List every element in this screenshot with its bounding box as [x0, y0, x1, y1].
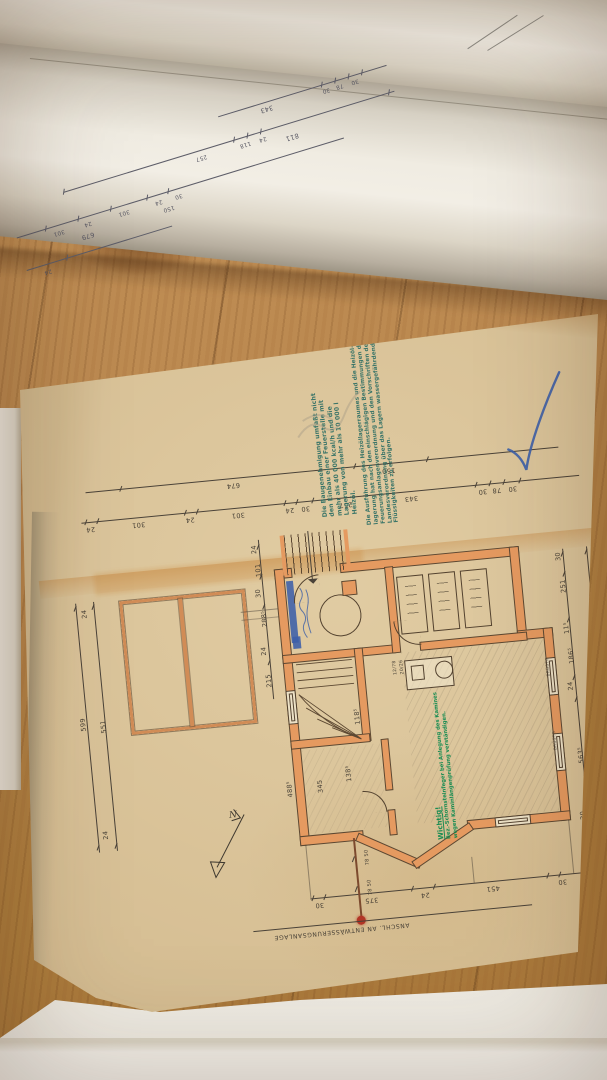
- dim-label: 30: [580, 810, 587, 820]
- white-sheet-bottom-second: [0, 1038, 607, 1080]
- dim-line: [586, 546, 607, 851]
- wall: [388, 810, 396, 834]
- dim-label: 118: [239, 139, 252, 148]
- pencil-scribble: [283, 371, 375, 459]
- dim-label: 24: [567, 681, 574, 691]
- dim-label: 30: [174, 191, 183, 199]
- dim-label: 30: [321, 86, 330, 94]
- dim-label: 138⁵: [345, 765, 353, 782]
- dim-label: 24: [260, 646, 267, 656]
- dim-label: 78: [335, 82, 344, 90]
- drain-pipe-line: [353, 838, 363, 922]
- dim-label: 345: [317, 779, 325, 793]
- blueprint-sheet: 674 150 24 301 24 301 24 30 257 343 30 7…: [0, 300, 607, 1020]
- dim-label: 30: [558, 878, 568, 885]
- white-sheet-under-left: [0, 408, 21, 790]
- dim-label: 24: [420, 891, 430, 898]
- dim-label: 30: [508, 485, 518, 492]
- dim-label: 150: [162, 203, 175, 212]
- drain-label: ANSCHL. AN ENTWÄSSERUNGSANLAGE: [274, 921, 410, 940]
- dim-label: 24: [251, 545, 258, 555]
- extension-line: [471, 857, 474, 883]
- dim-label: 24: [258, 134, 267, 142]
- drain-dim: 78 50: [367, 879, 373, 895]
- photo-of-blueprints: 343 30 78 30 257 118 24 811 301 24 301 2…: [0, 0, 607, 1080]
- appliance-note: 12/78: [393, 660, 399, 675]
- dim-label: 30: [555, 552, 562, 562]
- pencil-hatch-room: [302, 743, 388, 834]
- dim-label: 551: [100, 720, 108, 734]
- blue-pen-checkmark: [473, 361, 579, 485]
- dim-label: 301: [132, 521, 146, 529]
- dim-label: 811: [285, 132, 300, 142]
- tank-label-lines: [437, 582, 451, 617]
- dim-label: 24: [154, 198, 163, 206]
- dim-label: 251: [560, 579, 568, 593]
- window-symbol: [496, 815, 531, 826]
- extension-line: [305, 845, 311, 899]
- north-arrow-icon: N: [195, 804, 258, 883]
- boiler-circle: [318, 592, 364, 638]
- dim-label: 11⁵: [563, 622, 571, 635]
- dim-label: 78: [492, 486, 502, 493]
- terrace-divider: [178, 598, 194, 726]
- dim-label: 101: [255, 563, 263, 577]
- winder-stair: [287, 651, 367, 749]
- dim-label: 488⁵: [286, 781, 294, 798]
- dim-label: 11⁵: [584, 841, 592, 854]
- dim-label: 301: [117, 208, 130, 217]
- extension-line: [568, 819, 574, 873]
- oil-tank: [460, 568, 492, 628]
- sheet-content: 674 150 24 301 24 301 24 30 257 343 30 7…: [20, 328, 607, 998]
- dim-label: 24: [285, 506, 295, 513]
- tank-label-lines: [405, 585, 419, 620]
- dim-label: 288⁵: [261, 610, 269, 627]
- dim-label: 30: [255, 589, 262, 599]
- dim-label: 186⁵: [568, 647, 576, 664]
- dim-label: 30: [350, 77, 359, 85]
- dim-label: 375: [365, 896, 379, 904]
- north-label: N: [228, 810, 239, 821]
- dim-label: 24: [102, 830, 109, 840]
- dim-label: 118⁵: [353, 708, 361, 725]
- dim-label-total: 1100: [596, 684, 604, 703]
- dim-label: 24: [43, 267, 52, 275]
- dim-label: 679: [81, 231, 95, 241]
- door-arc: [292, 574, 321, 603]
- dim-label: 301: [231, 511, 245, 519]
- dim-label: 30: [301, 505, 311, 512]
- dim-label: 30: [478, 488, 488, 495]
- dim-label: 451: [486, 884, 500, 892]
- tank-label-lines: [469, 579, 483, 614]
- drain-dim: 78 50: [364, 849, 370, 865]
- dim-label: 301: [52, 227, 65, 236]
- entry-stair: [280, 529, 352, 575]
- terrace-outline: [119, 589, 257, 734]
- wall: [510, 547, 527, 639]
- dim-label: 674: [226, 481, 240, 489]
- dim-label: 343: [259, 104, 273, 114]
- dim-label: 343: [404, 494, 418, 502]
- dim-label: 24: [86, 525, 96, 532]
- dim-label: 24: [185, 516, 195, 523]
- chimney-flue: [342, 581, 356, 595]
- dim-label: 215: [265, 674, 273, 688]
- dim-label: 257: [195, 153, 208, 162]
- tick-mark: [585, 804, 588, 810]
- dim-label: 24: [83, 219, 92, 227]
- dim-label: 599: [80, 718, 88, 732]
- oil-tank: [428, 571, 460, 631]
- appliance-box: [411, 665, 425, 681]
- dim-label: 563⁵: [577, 747, 585, 764]
- dim-label: 24: [81, 609, 88, 619]
- dim-label: 69⁵: [582, 825, 590, 838]
- dim-label: 30: [315, 901, 325, 908]
